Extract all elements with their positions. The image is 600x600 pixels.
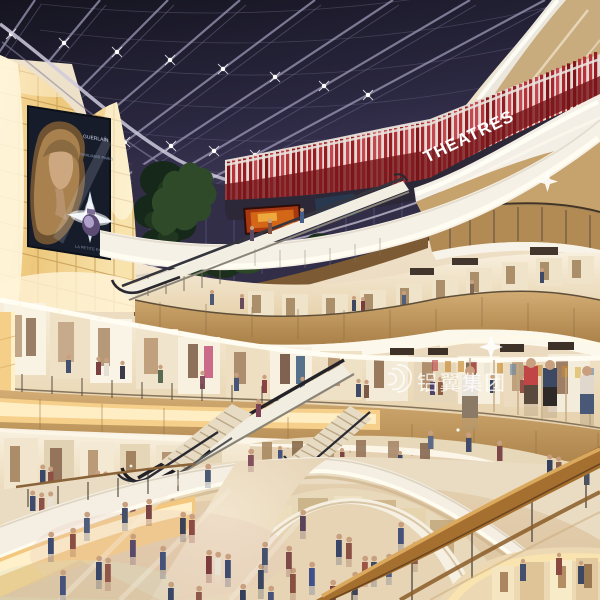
svg-text:铝翼集团: 铝翼集团 — [417, 372, 507, 395]
